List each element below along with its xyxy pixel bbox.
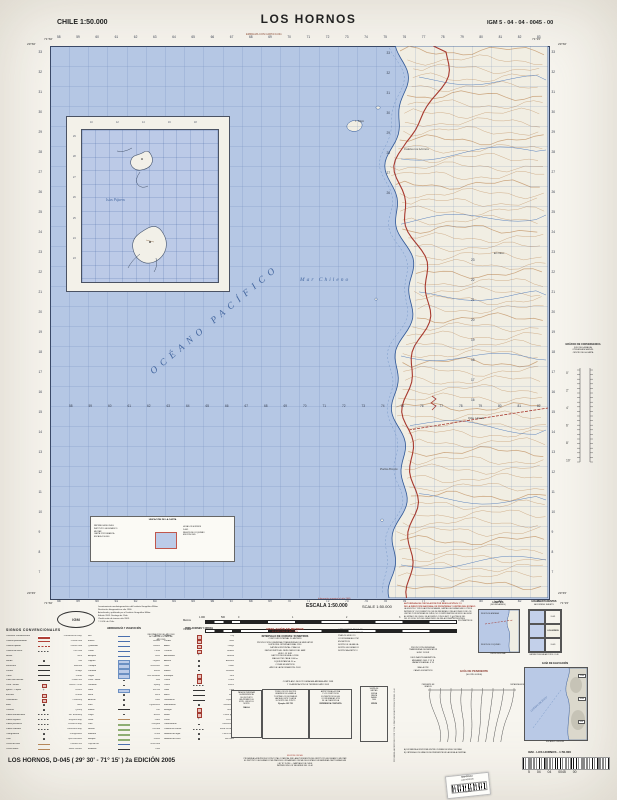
grid-label: 10 [552, 510, 556, 514]
grid-label: 31 [39, 90, 43, 94]
slope-guide-captions: A) DISTANCIA HORIZONTAL ENTRE CURVAS DE … [404, 749, 534, 754]
legend-label-en: Spot elevation [52, 738, 83, 740]
legend-label-es: Monumento [164, 704, 192, 706]
legend-symbol-grn [118, 738, 130, 741]
location-box-text: D-045 [183, 529, 188, 531]
scale-tick: 1.000 [199, 616, 205, 619]
elevation-tag: 1000 [578, 697, 586, 701]
legend-label-en: Canal [132, 650, 161, 652]
legend-label-es: Aldea [164, 645, 192, 647]
grid-label: 70 [287, 35, 291, 39]
legend-label-es: Puente [6, 670, 37, 672]
note-box: PARA DETERMINARLA REFERENCIADE UN PUNTOL… [231, 690, 262, 738]
legend-symbol-sq [193, 713, 205, 716]
adjacent-cell: LOS HORNOS [545, 624, 561, 638]
grid-label: 21 [471, 298, 475, 302]
grid-label: 66 [225, 404, 229, 408]
legend-symbol-blu [118, 650, 130, 653]
legend-label-en: Church [52, 689, 83, 691]
scale-bar-metric [240, 620, 457, 624]
legend-label-en: Well [132, 679, 161, 681]
legend-label-en: Orchard [132, 728, 161, 730]
adjacent-cell: D-041 [545, 610, 561, 624]
corner-coordinate: 71°30' [44, 37, 53, 41]
grid-label: 68 [264, 404, 268, 408]
adjacent-cell [529, 610, 545, 624]
place-label: Qda. Honda [468, 416, 484, 420]
elevation-tag: 500 [578, 720, 585, 724]
elevation-info-block: NIVELACIÓN EN METROSELEVATIONS IN METERS… [238, 627, 332, 669]
grid-label: 71 [307, 35, 311, 39]
grid-label: 12 [39, 470, 43, 474]
legend-label-en: Town [207, 640, 235, 642]
legend-label-es: Quebrada [88, 645, 117, 647]
legend-symbol-sq [38, 699, 50, 702]
svg-text:10': 10' [566, 459, 571, 463]
legend-label-es: Cementerio [6, 699, 37, 701]
elevation-guide-scale: ESCALA 1:1.000.000 [524, 741, 586, 743]
elevation-guide-title: GUÍA DE ELEVACIÓN [524, 662, 586, 665]
barcode [522, 757, 610, 770]
inset-island-label: Islas Pájaros [106, 198, 125, 202]
note-box-line: EL NORTE DEL PUNTO [264, 700, 307, 702]
legend-label-en: Gravel road [52, 645, 83, 647]
legend-symbol-blua [118, 674, 130, 677]
legend-symbol-blk [38, 664, 50, 667]
grid-label: 66 [211, 599, 215, 603]
legend-label-es: Viña [88, 723, 117, 725]
legend-label-en: Communal bdy. [52, 728, 83, 730]
scale-red-note: Información marginal al año 2005 [318, 598, 350, 600]
slope-guide-fan [424, 686, 520, 746]
legend-label-en: Track [52, 655, 83, 657]
grid-label: 28 [39, 150, 43, 154]
inset-grid-label: 25 [73, 217, 76, 220]
legend-symbol-dot [38, 738, 50, 741]
grid-label: 20 [471, 318, 475, 322]
elevation-guide-box: OCÉANO PACÍFICO 15001000500 [524, 667, 588, 741]
grid-label: 31 [552, 90, 556, 94]
location-box-text: EDICIÓN 2005 [183, 534, 196, 536]
svg-text:8': 8' [566, 441, 569, 445]
legend-label-es: Cota [6, 738, 37, 740]
legend-label-es: Molino [164, 670, 192, 672]
legend-label-en: Windmill [207, 670, 235, 672]
grid-label: 20 [552, 310, 556, 314]
grid-label: 26 [552, 190, 556, 194]
legend-label-en: Fence [207, 684, 235, 686]
legend-label-es: Refugio [164, 709, 192, 711]
legend-symbol-blk [38, 679, 50, 682]
corner-coordinate: 71°30' [44, 601, 53, 605]
legend-label-es: Aeródromo [164, 655, 192, 657]
legend-title: SIGNOS CONVENCIONALES [6, 628, 61, 632]
igm-code-line: IGM - LOS HORNOS - 1:50.000 [528, 750, 571, 754]
legend-symbol-dsh [38, 650, 50, 653]
datum-line: AÑO DE LA INFORMACIÓN: 2003 [238, 667, 332, 670]
inset-grid-label: 23 [73, 257, 76, 260]
legend-symbol-dsh [38, 718, 50, 721]
grid-label: 76 [403, 35, 407, 39]
legend-label-es: Límite internacional [6, 714, 37, 716]
grid-label: 22 [552, 270, 556, 274]
adjacent-cell [529, 624, 545, 638]
corner-coordinate: 29°30' [558, 42, 567, 46]
legend-label-es: Acequia [88, 655, 117, 657]
legend-label-en: Paved road [52, 640, 83, 642]
legend-label-es: Escuela [6, 694, 37, 696]
scale-tick: 0 [238, 616, 239, 619]
legend-symbol-red2 [38, 635, 50, 638]
note-box: ANTEPONGA LA ZONAY LOS CIENTOS DEKILÓMET… [309, 689, 352, 739]
grid-label: 7 [552, 570, 554, 574]
legend-label-en: Marsh [132, 670, 161, 672]
legend-label-es: Posta [164, 719, 192, 721]
legend-symbol-brn [38, 743, 50, 746]
legend-label-en: Wet meadow [132, 675, 161, 677]
legend-label-es: Nombre de lugar [164, 733, 192, 735]
legend-label-es: Balsa [164, 694, 192, 696]
declination-line: VARIACIÓN ANUAL: 8' W [404, 662, 442, 664]
legend-symbol-blk [38, 669, 50, 672]
grid-label: 65 [191, 35, 195, 39]
grid-label: 30 [387, 111, 391, 115]
grid-label: 30 [39, 110, 43, 114]
grid-label: 19 [552, 330, 556, 334]
legend-symbol-blk [118, 708, 130, 711]
legend-label-en: Airfield [207, 655, 235, 657]
legend-label-es: Salar [88, 689, 117, 691]
grid-label: 26 [387, 191, 391, 195]
legend-col-hydro: HIDROGRAFÍA Y VEGETACIÓNRíoRiverEsteroSt… [88, 628, 160, 751]
legend-label-en: Index contour [52, 748, 83, 750]
legend-label-en: Lagoon [132, 660, 161, 662]
legend-label-es: Vado [164, 689, 192, 691]
legend-label-es: Camino ripiado [6, 645, 37, 647]
legend-label-es: Casa - Ruina [6, 684, 37, 686]
grid-label: 70 [287, 599, 291, 603]
datum-info-block: CARTOGRAFÍA REGULARSISTEMA DE REFERENCIA… [338, 629, 394, 653]
legend-label-en: Vineyard [132, 723, 161, 725]
grid-label: 30 [552, 110, 556, 114]
grid-label: 33 [387, 51, 391, 55]
legend-label-en: Dirt road [52, 650, 83, 652]
grid-label: 25 [552, 210, 556, 214]
legend-label-es: Observatorio [164, 723, 192, 725]
legend-label-en: Dune [132, 719, 161, 721]
adjacent-subtitle: ADJOINING SHEETS [522, 604, 566, 606]
legend-label-en: Dam [132, 748, 161, 750]
grid-label: 9 [39, 530, 41, 534]
grid-label: 74 [364, 599, 368, 603]
note-box: TOME LOS DOS DÍGITOSGRANDES DE LA MALLAY… [262, 689, 309, 739]
note-box-line: NORTE [233, 703, 260, 705]
grid-label: 65 [191, 599, 195, 603]
legend-label-en: Ford [207, 689, 235, 691]
declination-sub-block: PROYECCIÓN UNIVERSALTRANSVERSAL DE MERCA… [404, 647, 442, 654]
legend-label-en: Triangulation [52, 733, 83, 735]
legend-symbol-dot [193, 723, 205, 726]
legend-label-en: Corral [207, 679, 235, 681]
elevation-title-en: ELEVATIONS IN METERS [238, 631, 332, 633]
sheet-code: IGM 5 - 04 - 04 - 0045 - 00 [487, 20, 553, 26]
location-box-text: HOJA LOS HORNOS [183, 526, 201, 528]
legend-label-en: Lighthouse [132, 704, 161, 706]
grid-label: 67 [230, 599, 234, 603]
scale-tick: 3 [399, 616, 400, 619]
legend-label-en: Salt flat [132, 689, 161, 691]
legend-symbol-dsh [193, 684, 205, 687]
grid-label: 75 [383, 35, 387, 39]
grid-label: 58 [69, 404, 73, 408]
legend-label-es: Límite comunal [6, 728, 37, 730]
legend-label-en: Quarry [52, 709, 83, 711]
legend-symbol-blu [118, 655, 130, 658]
limites-caption: LÍMITE REGIONAL [472, 653, 524, 655]
legend-symbol-cross [193, 718, 205, 721]
copyright-line: IMPRESO EN LOS TALLERES DEL I.G.M. [206, 765, 384, 768]
offshore-inset-map: Islas Pájaros [66, 116, 230, 292]
compilation-note: COMPILADO DE FOTOGRAFÍAS AÉREAS AÑO 1998… [238, 681, 378, 686]
scale-tick: 1 [292, 616, 293, 619]
legend-label-es: Antena [164, 660, 192, 662]
note-box: VENTA DECARTAS:NUEVASANTAISABEL1640VENTA [360, 686, 388, 742]
legend-label-en: Ferry [207, 694, 235, 696]
legend-symbol-blk [193, 694, 205, 697]
grid-label: 29 [387, 131, 391, 135]
legend-symbol-dot [118, 684, 130, 687]
legend-symbol-dot [118, 713, 130, 716]
legend-label-en: First aid [207, 719, 235, 721]
grid-label: 81 [499, 35, 503, 39]
legend-label-es: Túnel [6, 675, 37, 677]
legend-label-en: Regional bdy. [52, 719, 83, 721]
publisher-block: Levantamiento aerofotogramétrico del Ins… [98, 606, 186, 623]
legend-symbol-dot [118, 699, 130, 702]
legend-label-en: Rock [132, 694, 161, 696]
scale-bar-metric-sub [205, 620, 242, 624]
grid-label: 73 [362, 404, 366, 408]
legend-label-en: Ravine [132, 645, 161, 647]
grid-label: 60 [95, 35, 99, 39]
legend-symbol-dsh [38, 655, 50, 658]
publisher-line: © I.G.M. de Chile. [98, 621, 186, 624]
svg-text:2': 2' [566, 389, 569, 393]
legend-label-es: Pozo - Noria [88, 679, 117, 681]
grid-label: 27 [552, 170, 556, 174]
grid-label: 71 [323, 404, 327, 408]
grid-label: 17 [552, 370, 556, 374]
legend-label-es: Playa [88, 714, 117, 716]
inset-water: Islas Pájaros [81, 129, 219, 283]
grid-label: 15 [552, 410, 556, 414]
legend-label-es: Huerto [88, 728, 117, 730]
legend-label-en: Reef [132, 699, 161, 701]
legend-label-en: Power line [52, 679, 83, 681]
legend-label-es: Muelle [88, 709, 117, 711]
grid-label: 9 [552, 530, 554, 534]
grid-label: 79 [460, 35, 464, 39]
legend-label-es: Duna [88, 719, 117, 721]
legend-label-en: River [132, 635, 161, 637]
note-box-caption: VENTA [362, 703, 386, 705]
grid-label: 70 [303, 404, 307, 408]
legend-label-en: School [52, 694, 83, 696]
legend-label-en: Provincial bdy. [52, 723, 83, 725]
svg-text:4': 4' [566, 406, 569, 410]
legend-label-en: Tank [207, 675, 235, 677]
legend-label-es: Río [88, 635, 117, 637]
legend-symbol-dsh [193, 728, 205, 731]
legend-label-es: Canal [88, 650, 117, 652]
grid-label: 82 [518, 35, 522, 39]
legend-label-es: Triangulación [6, 733, 37, 735]
adjacent-title: HOJAS ADYACENTES [522, 600, 566, 603]
legend-label-en: Cemetery [52, 699, 83, 701]
legend-label-es: Iglesia - Capilla [6, 689, 37, 691]
sheet-location-box: UBICACIÓN DE LA CARTA REPÚBLICA DE CHILE… [90, 516, 235, 562]
grid-label: 13 [39, 450, 43, 454]
legend-label-en: Intl. boundary [52, 714, 83, 716]
scale-tick: 2 [346, 616, 347, 619]
legend-label-es: Corral [164, 679, 192, 681]
legend-symbol-sq [193, 635, 205, 638]
grid-label: 69 [268, 599, 272, 603]
grid-label: 78 [459, 404, 463, 408]
legend-symbol-dot [193, 669, 205, 672]
slope-guide-title: GUÍA DE PENDIENTE [436, 669, 512, 673]
inset-grid-label: 29 [73, 135, 76, 138]
corner-coordinate: 29°30' [27, 42, 36, 46]
legend-label-es: Estero [88, 640, 117, 642]
grid-label: 59 [89, 404, 93, 408]
grid-label: 65 [206, 404, 210, 408]
legend-label-es: Vertiente [88, 684, 117, 686]
grid-label: 77 [440, 404, 444, 408]
scale-tick: 500 [221, 616, 225, 619]
legend-symbol-blk [193, 699, 205, 702]
grid-label: 15 [39, 410, 43, 414]
legend-label-es: Torre [164, 665, 192, 667]
grid-label: 17 [471, 378, 475, 382]
legend-row: Curva índiceIndex contour [6, 746, 82, 751]
legend-label-en: Spring [132, 684, 161, 686]
legend-col-towns: POBLACIONES Y OBRASCiudadCityPuebloTownA… [164, 628, 234, 742]
grid-label: 69 [284, 404, 288, 408]
legend-label-en: Scrub [132, 733, 161, 735]
legend-label-en: Hill name [207, 738, 235, 740]
legend-label-es: Caserío [164, 650, 192, 652]
inset-grid-label: 16 [168, 121, 171, 124]
grid-label: 69 [268, 35, 272, 39]
legend-label-en: Tunnel [52, 675, 83, 677]
legend-label-es: Cerco [164, 684, 192, 686]
grid-label: 59 [76, 35, 80, 39]
inset-grid-label: 14 [142, 121, 145, 124]
legend-symbol-sq [193, 640, 205, 643]
legend-symbol-dot [118, 694, 130, 697]
grid-label: 27 [39, 170, 43, 174]
legend-symbol-dot [193, 738, 205, 741]
grid-label: 28 [387, 151, 391, 155]
grid-label: 27 [387, 171, 391, 175]
grid-label: 75 [401, 404, 405, 408]
legend-label-es: Camino en constr. [164, 728, 192, 730]
legend-row: EmbalseDam [88, 746, 160, 751]
datum-line: NORTE MAGNÉTICO [338, 650, 394, 653]
legend-label-es: Roca [88, 694, 117, 696]
compilation-line: Y CLASIFICACIÓN DE TERRENO AÑO 2003 [238, 684, 378, 687]
adjacent-cell: D-049 [545, 638, 561, 652]
grid-label: 18 [552, 350, 556, 354]
limites-box: REGIÓN DE ATACAMA REGIÓN DE COQUIMBO [478, 609, 520, 653]
grid-label: 31 [387, 91, 391, 95]
legend-symbol-blu [118, 743, 130, 746]
inset-islands [82, 130, 218, 282]
grid-label: 80 [498, 404, 502, 408]
grid-label: 8 [39, 550, 41, 554]
grid-label: 73 [345, 35, 349, 39]
grid-label: 63 [153, 599, 157, 603]
legend-label-es: Faro [88, 704, 117, 706]
convergence-diagram: GRÁFICO DE CONVERGENCIA(USO DE LA MALLA)… [552, 344, 614, 354]
legend-label-en: Contour line [52, 743, 83, 745]
grid-label: 62 [134, 35, 138, 39]
grid-label: 67 [245, 404, 249, 408]
grid-label: 16 [552, 390, 556, 394]
grid-label: 11 [552, 490, 555, 494]
location-box-title: UBICACIÓN DE LA CARTA [91, 519, 234, 521]
grid-label: 16 [39, 390, 43, 394]
grid-label: 33 [39, 50, 43, 54]
legend-symbol-sq [193, 708, 205, 711]
grid-label: 14 [552, 430, 556, 434]
grid-label: 63 [167, 404, 171, 408]
legend-label-es: Vegas [88, 675, 117, 677]
slope-guide-subtitle: (SLOPE GUIDE) [436, 674, 512, 676]
legend-symbol-blu [118, 640, 130, 643]
inset-grid-label: 24 [73, 237, 76, 240]
grid-label: 72 [342, 404, 346, 408]
grid-label: 21 [39, 290, 43, 294]
legend-label-es: Carretera Panamericana [6, 635, 37, 637]
place-label: Punta Poroto [380, 467, 398, 471]
inset-grid-label: 18 [194, 121, 197, 124]
limites-label-bottom: REGIÓN DE COQUIMBO [481, 644, 500, 646]
note-box-caption: Ejemplo: 283 725 [264, 703, 307, 705]
grid-label: 26 [39, 190, 43, 194]
grid-label: 17 [39, 370, 43, 374]
grid-label: 58 [57, 599, 61, 603]
grid-label: 11 [39, 490, 42, 494]
legend-label-es: Ciudad [164, 635, 192, 637]
legend-label-es: Camino pavimentado [6, 640, 37, 642]
adjacent-grid: D-041LOS HORNOSD-049 [528, 609, 562, 653]
grid-label: 22 [39, 270, 43, 274]
location-thumbnail [155, 532, 177, 549]
legend-symbol-dot [38, 659, 50, 662]
legend-symbol-dot [193, 703, 205, 706]
grid-label: 58 [57, 35, 61, 39]
legend-label-en: House - Ruin [52, 684, 83, 686]
legend-label-en: Forest [132, 738, 161, 740]
legend-label-es: Estanque [164, 675, 192, 677]
legend-label-es: Laguna [88, 660, 117, 662]
grid-label: 80 [479, 35, 483, 39]
legend-label-es: Límite regional [6, 719, 37, 721]
legend-label-en: Railroad [52, 665, 83, 667]
grid-label: 62 [134, 599, 138, 603]
